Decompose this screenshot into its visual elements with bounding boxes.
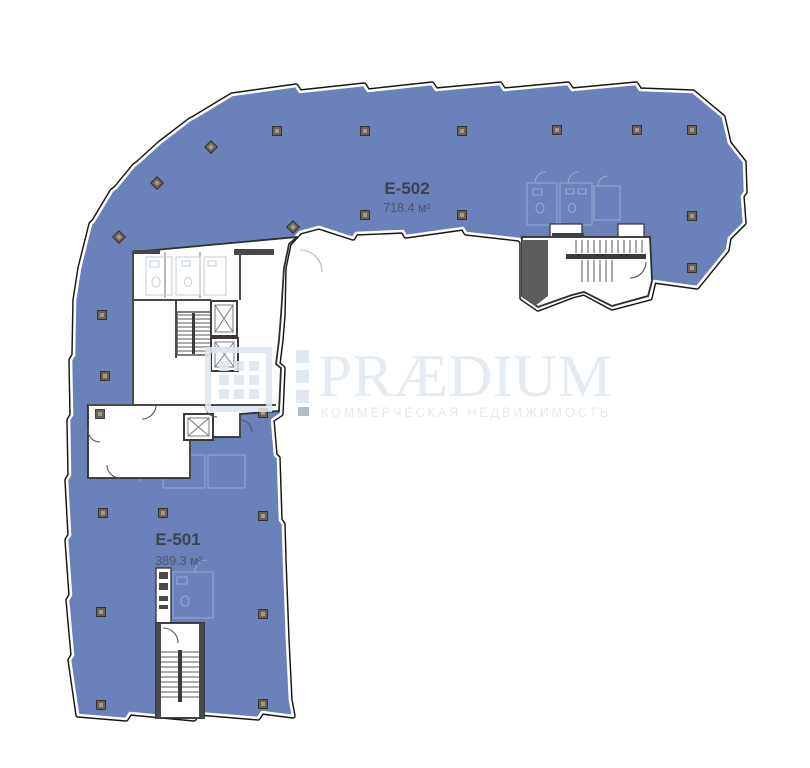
column-marker <box>101 372 110 381</box>
stair-wall-hatch <box>522 240 548 306</box>
unit-e502-label: E-502 <box>384 179 429 198</box>
floorplan-svg: E-502 718.4 м² E-501 389.3 м² PRÆDIUM КО… <box>0 0 810 768</box>
column-marker <box>553 126 562 135</box>
column-marker <box>98 311 107 320</box>
elevator-1 <box>211 301 237 336</box>
elevator-3 <box>184 414 213 440</box>
unit-e502-area: 718.4 м² <box>383 201 431 215</box>
praedium-tagline-text: КОММЕРЧЕСКАЯ НЕДВИЖИМОСТЬ <box>321 405 611 420</box>
stair-stringer <box>566 254 646 259</box>
column-marker <box>361 127 370 136</box>
column-marker <box>633 126 642 135</box>
column-marker <box>259 610 268 619</box>
column-marker <box>458 211 467 220</box>
riser-box <box>159 605 168 609</box>
stair-label-strip <box>552 233 584 238</box>
unit-e501-area: 389.3 м² <box>155 554 203 568</box>
column-marker <box>688 264 697 273</box>
stair-landing-tab <box>618 224 644 238</box>
column-marker <box>96 410 105 419</box>
riser-box <box>159 583 168 590</box>
column-marker <box>688 126 697 135</box>
column-marker <box>273 127 282 136</box>
riser-box <box>159 572 168 579</box>
column-marker <box>97 701 106 710</box>
column-marker <box>688 212 697 221</box>
column-marker <box>97 608 106 617</box>
stair-wall <box>156 623 161 718</box>
stair-stringer <box>178 650 182 702</box>
unit-e501-label: E-501 <box>155 530 200 549</box>
floorplan-canvas: E-502 718.4 м² E-501 389.3 м² PRÆDIUM КО… <box>0 0 810 768</box>
column-marker <box>458 127 467 136</box>
column-marker <box>259 700 268 709</box>
column-marker <box>159 509 168 518</box>
unit-e502-hotspot[interactable]: E-502 718.4 м² <box>383 179 431 215</box>
praedium-watermark: PRÆDIUM КОММЕРЧЕСКАЯ НЕДВИЖИМОСТЬ <box>208 343 612 420</box>
column-marker <box>99 509 108 518</box>
riser-box <box>159 596 168 601</box>
ghost-door-arc <box>300 250 322 272</box>
column-marker <box>361 211 370 220</box>
stair-stringer <box>192 313 195 354</box>
column-marker <box>259 512 268 521</box>
praedium-brand-text: PRÆDIUM <box>318 343 612 409</box>
wall-band <box>133 250 160 254</box>
stair-wall <box>199 623 204 718</box>
praedium-colon-icon <box>296 350 309 416</box>
